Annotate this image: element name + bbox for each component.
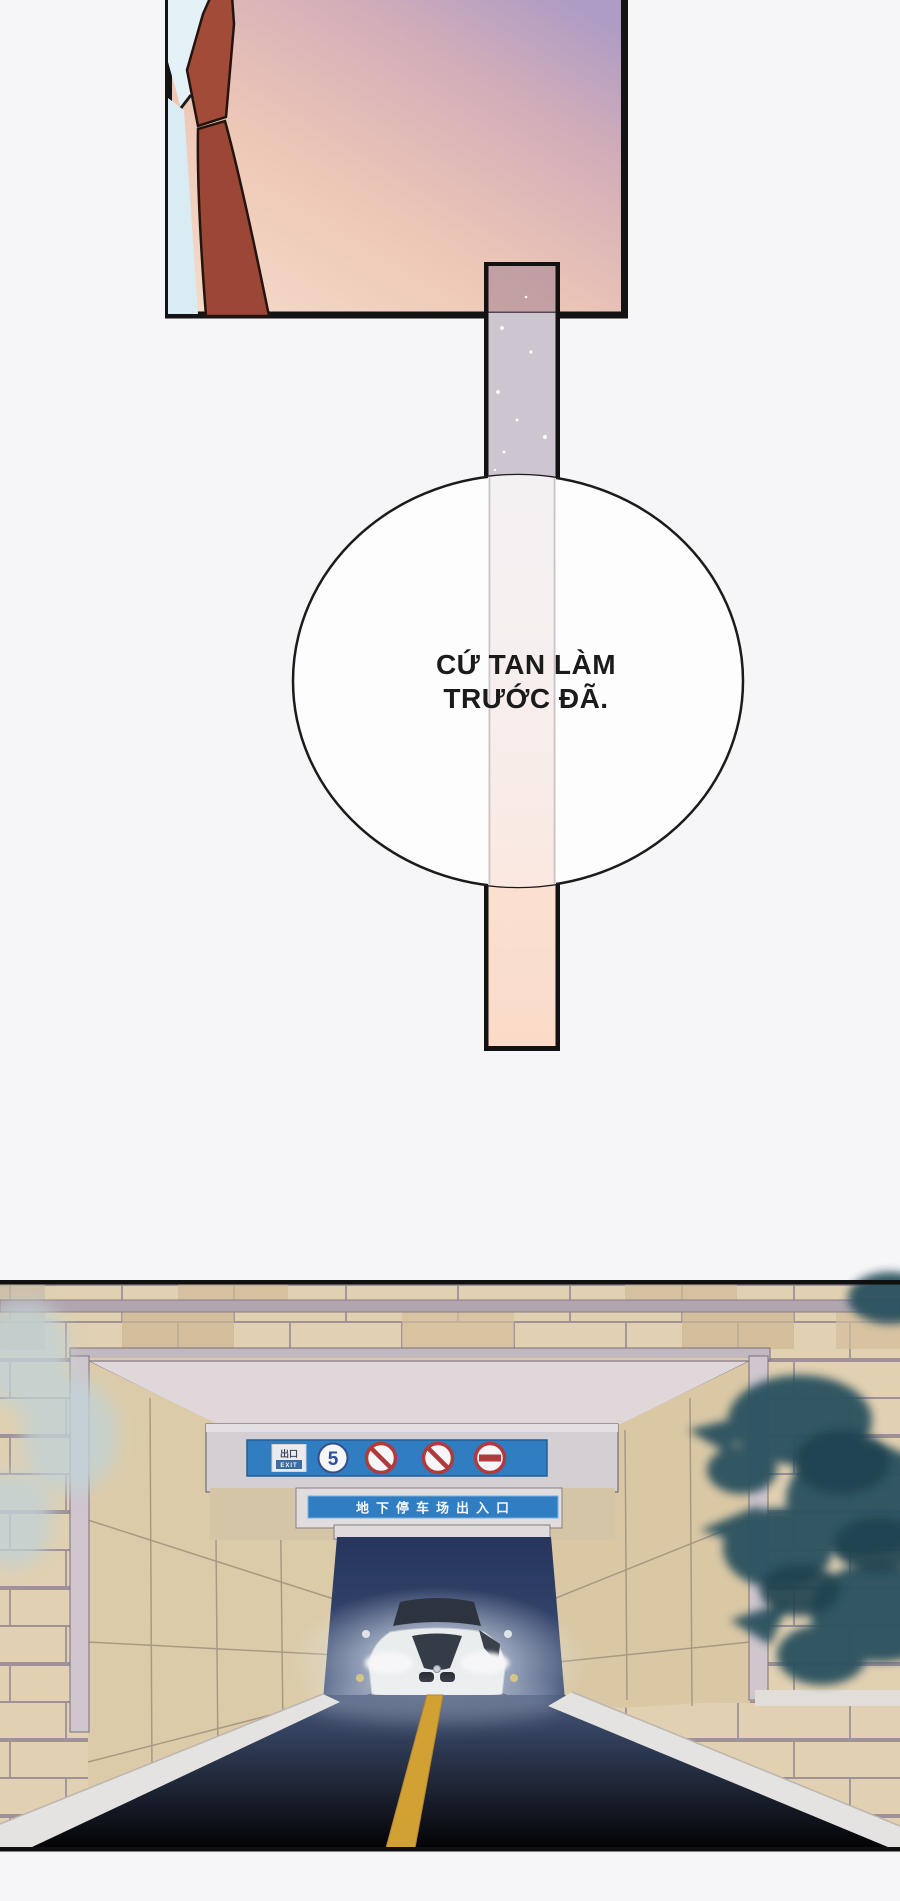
bubble-line-2: TRƯỚC ĐÃ.	[443, 683, 608, 714]
bubble-sash-fill	[488, 470, 556, 890]
sash-top-overlay	[488, 262, 556, 317]
speech-bubble-group: CỨ TAN LÀM TRƯỚC ĐÃ.	[293, 470, 743, 890]
garage-border-top	[0, 1280, 900, 1285]
sparkle	[516, 419, 519, 422]
sparkle	[503, 451, 506, 454]
comic-page: CỨ TAN LÀM TRƯỚC ĐÃ.	[0, 0, 900, 1901]
garage-panel: 出口 EXIT 5	[0, 1272, 900, 1852]
sash-border-top	[484, 262, 560, 266]
sparkle	[496, 390, 500, 394]
sparkle	[525, 296, 528, 299]
bubble-sash-overlay	[488, 470, 556, 890]
sash-border-bottom	[484, 1046, 560, 1051]
sparkle	[500, 326, 504, 330]
sparkle	[494, 469, 496, 471]
bubble-line-1: CỨ TAN LÀM	[436, 649, 616, 680]
sparkle	[529, 350, 532, 353]
garage-border-bottom	[0, 1847, 900, 1852]
sparkle	[543, 435, 547, 439]
dusk-tint	[0, 1284, 900, 1850]
comic-page-canvas: CỨ TAN LÀM TRƯỚC ĐÃ.	[0, 0, 900, 1901]
